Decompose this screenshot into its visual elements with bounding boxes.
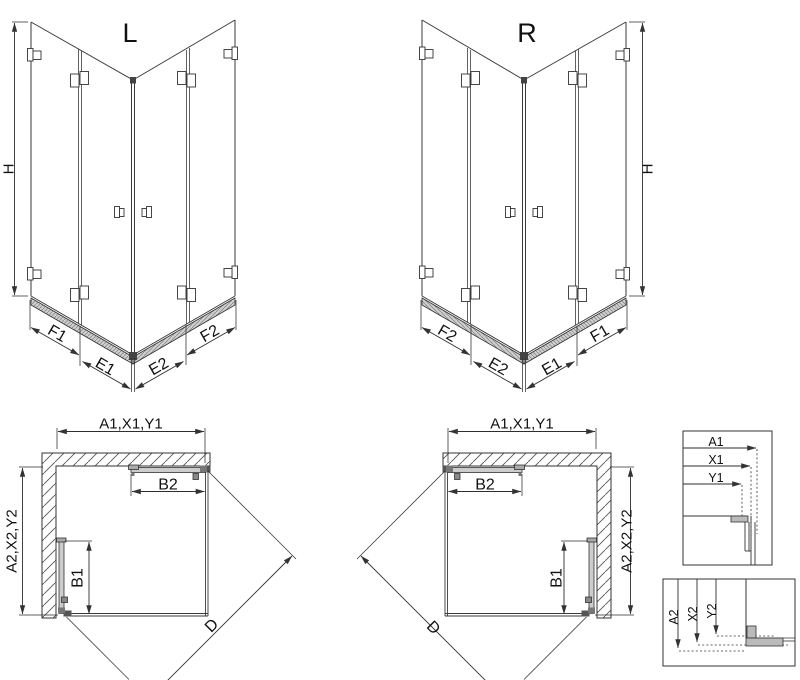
technical-drawing: L H F1 E1 E2 F2 R H F2 E2 E1 F1 A1,X1,Y1… [0, 0, 800, 680]
detail-y1-label: Y1 [708, 471, 723, 485]
dim-label-e2-right: E2 [485, 355, 511, 380]
dim-label-height-right: H [640, 164, 657, 175]
detail-y2-label: Y2 [705, 603, 719, 618]
detail-x2-label: X2 [686, 606, 700, 621]
view-label-left: L [122, 18, 137, 48]
plan-left-width-label: A1,X1,Y1 [99, 416, 162, 433]
walls-left-plan [42, 453, 210, 618]
plan-view-left: A1,X1,Y1 A2,X2,Y2 B2 B1 D [4, 416, 297, 680]
walls-right-plan [443, 453, 611, 618]
plan-right-b2-label: B2 [475, 477, 495, 494]
plan-right-b1-label: B1 [549, 568, 566, 588]
plan-left-b2-label: B2 [158, 477, 178, 494]
dim-label-f1-right: F1 [588, 322, 613, 346]
dim-label-e2-left: E2 [146, 355, 172, 380]
detail-x1-label: X1 [708, 453, 723, 467]
dim-label-e1-right: E1 [539, 355, 565, 380]
view-label-right: R [517, 18, 537, 48]
plan-view-right: A1,X1,Y1 A2,X2,Y2 B2 B1 D [357, 416, 636, 680]
detail-box-width: A1 X1 Y1 [683, 431, 772, 565]
dim-label-f2-right: F2 [435, 322, 460, 346]
detail-box-depth: A2 X2 Y2 [663, 579, 795, 666]
detail-a1-label: A1 [708, 435, 723, 449]
iso-view-right: R H F2 E2 E1 F1 [420, 18, 657, 392]
plan-left-b1-label: B1 [70, 568, 87, 588]
plan-right-depth-label: A2,X2,Y2 [619, 509, 636, 572]
plan-right-width-label: A1,X1,Y1 [490, 416, 553, 433]
dim-label-f1-left: F1 [45, 322, 70, 346]
plan-left-depth-label: A2,X2,Y2 [4, 509, 21, 572]
iso-view-left: L H F1 E1 E2 F2 [1, 18, 238, 392]
plan-left-diagonal-label: D [202, 616, 222, 636]
dim-label-e1-left: E1 [92, 355, 118, 380]
detail-a2-label: A2 [667, 609, 681, 624]
dim-label-f2-left: F2 [198, 322, 223, 346]
dim-label-height-left: H [1, 164, 18, 175]
